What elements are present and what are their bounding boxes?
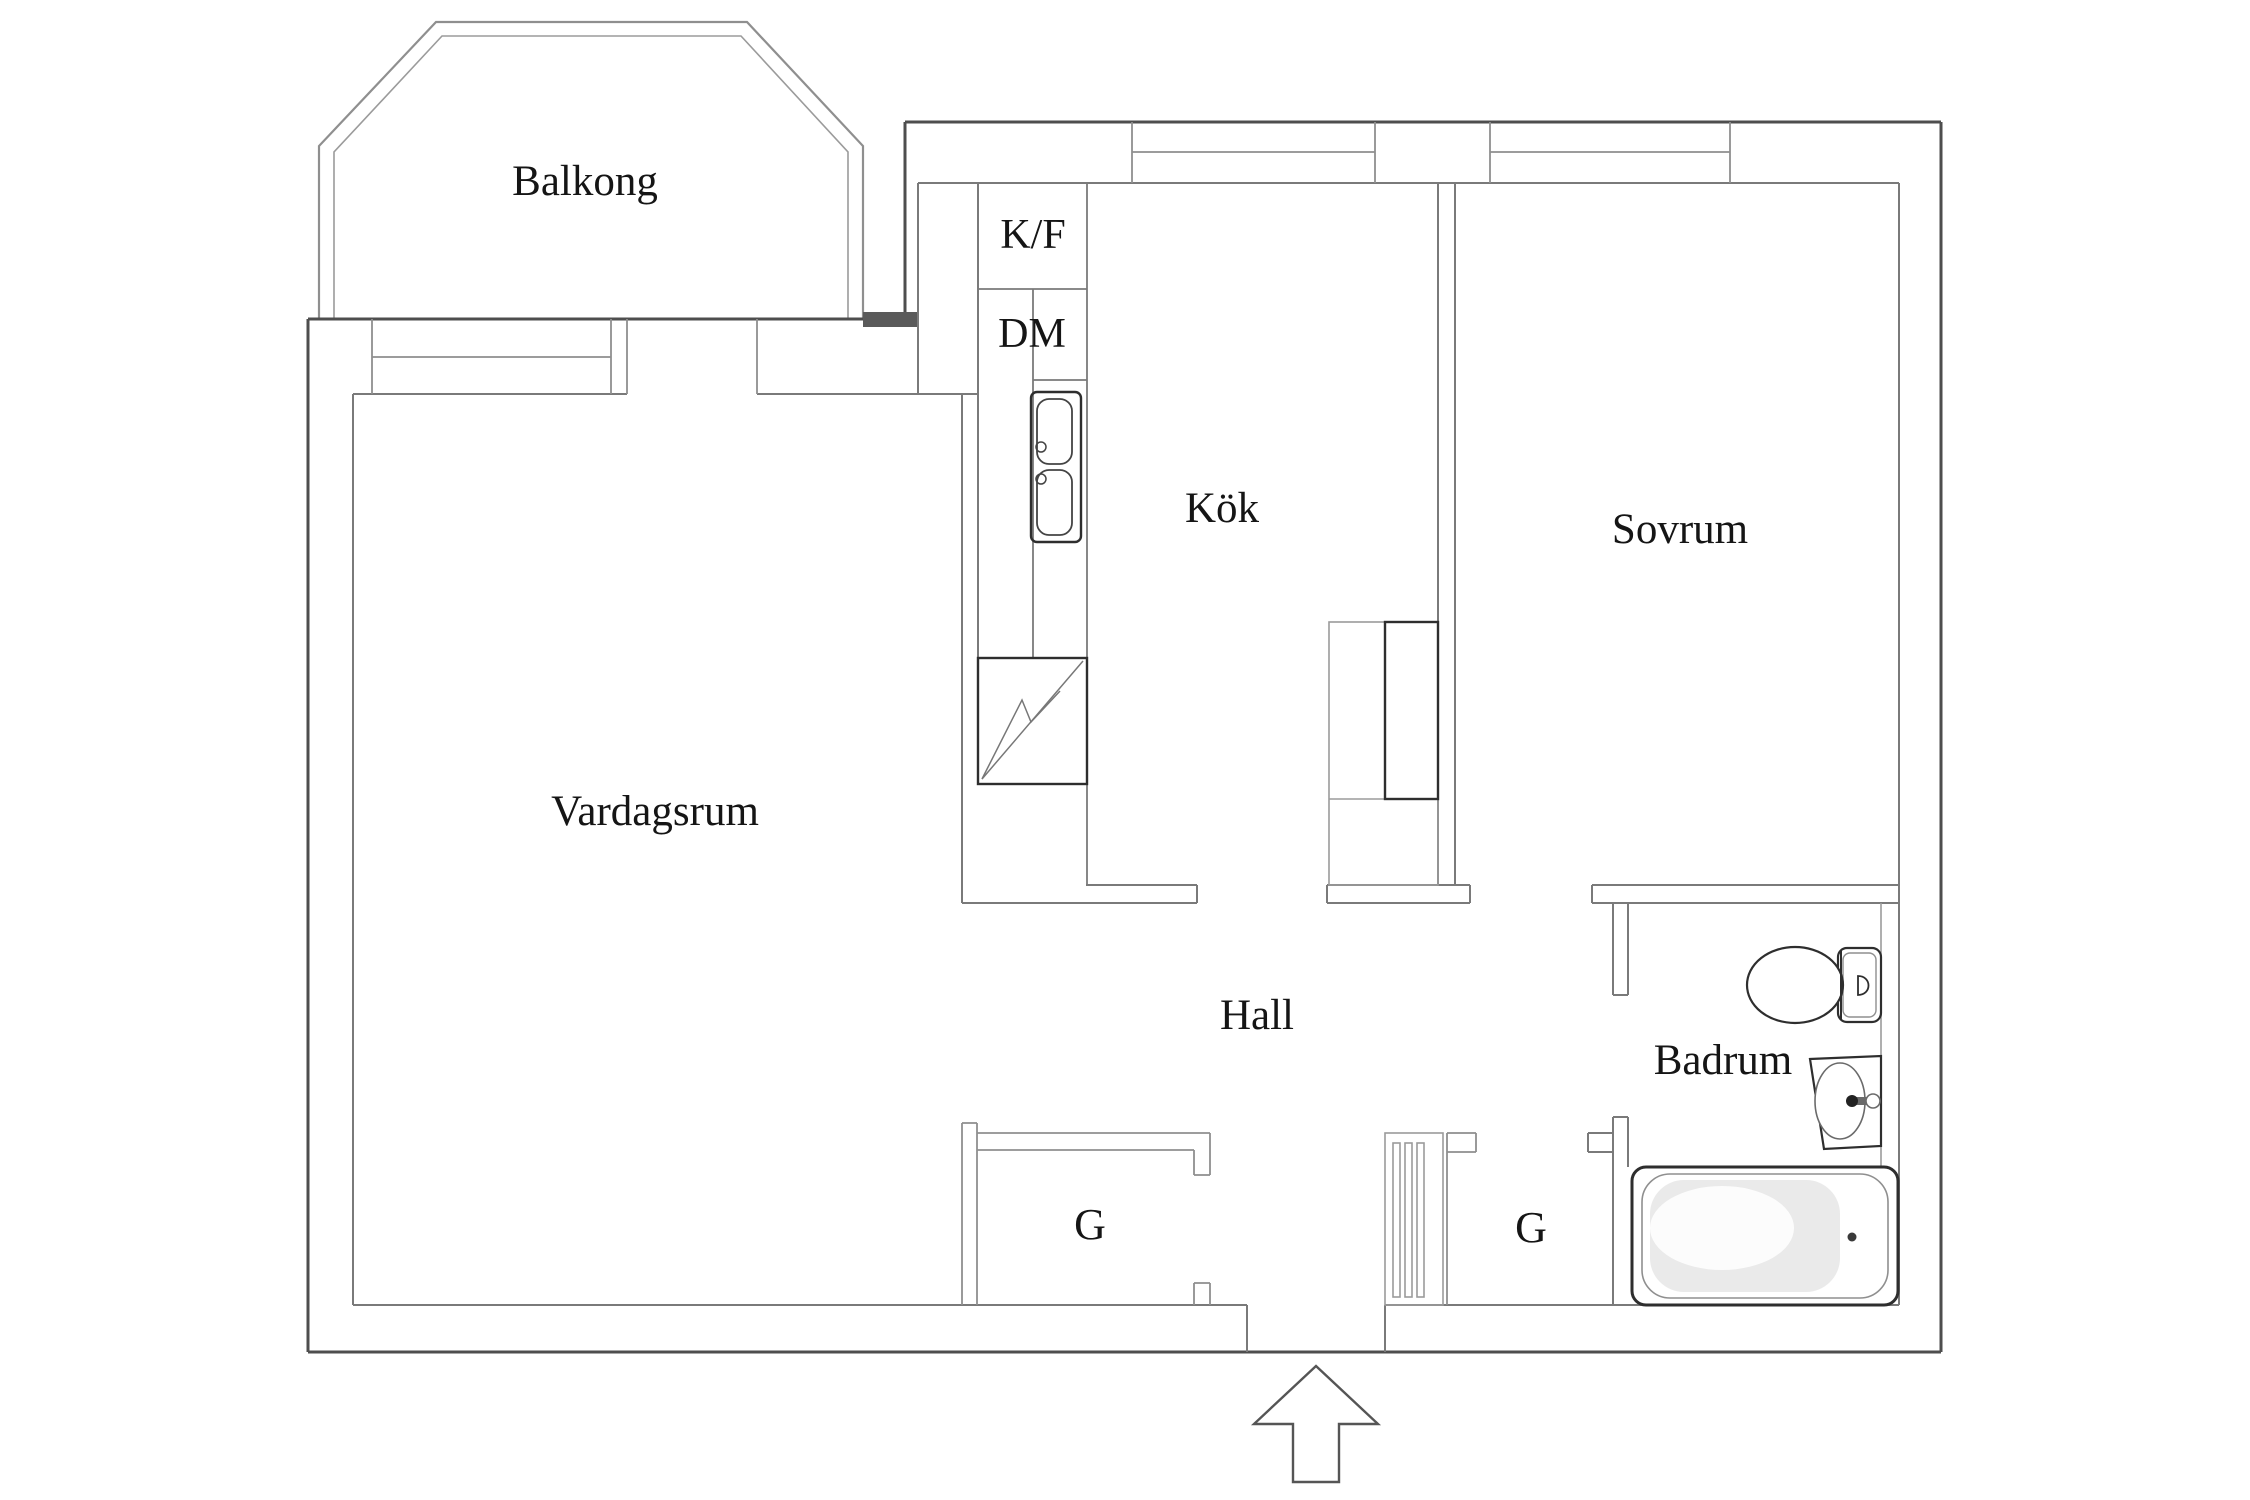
kitchen-sink <box>1031 392 1081 542</box>
label-dishwasher: DM <box>998 311 1066 357</box>
label-fridge-freezer: K/F <box>1000 212 1065 258</box>
label-kok: Kök <box>1185 485 1260 532</box>
room-labels: Balkong Vardagsrum Kök Sovrum Hall Badru… <box>512 158 1792 1252</box>
wall-stub <box>863 312 918 327</box>
washbasin <box>1810 1056 1881 1149</box>
toilet <box>1747 947 1881 1023</box>
label-balkong: Balkong <box>512 158 658 205</box>
radiator-grille <box>1385 1133 1443 1305</box>
kitchen-cabinet <box>1329 622 1438 885</box>
label-vardagsrum: Vardagsrum <box>551 788 759 835</box>
label-badrum: Badrum <box>1654 1037 1793 1084</box>
electric-stove <box>978 658 1087 784</box>
closet-right-walls <box>1447 1133 1476 1305</box>
bathtub <box>1632 1167 1898 1305</box>
label-sovrum: Sovrum <box>1612 506 1748 553</box>
floor-plan: Balkong Vardagsrum Kök Sovrum Hall Badru… <box>0 0 2250 1500</box>
label-closet-left: G <box>1074 1200 1106 1249</box>
kitchen-counter <box>978 183 1087 885</box>
label-hall: Hall <box>1220 992 1294 1039</box>
label-closet-right: G <box>1515 1203 1547 1252</box>
entrance-arrow <box>1254 1366 1378 1482</box>
